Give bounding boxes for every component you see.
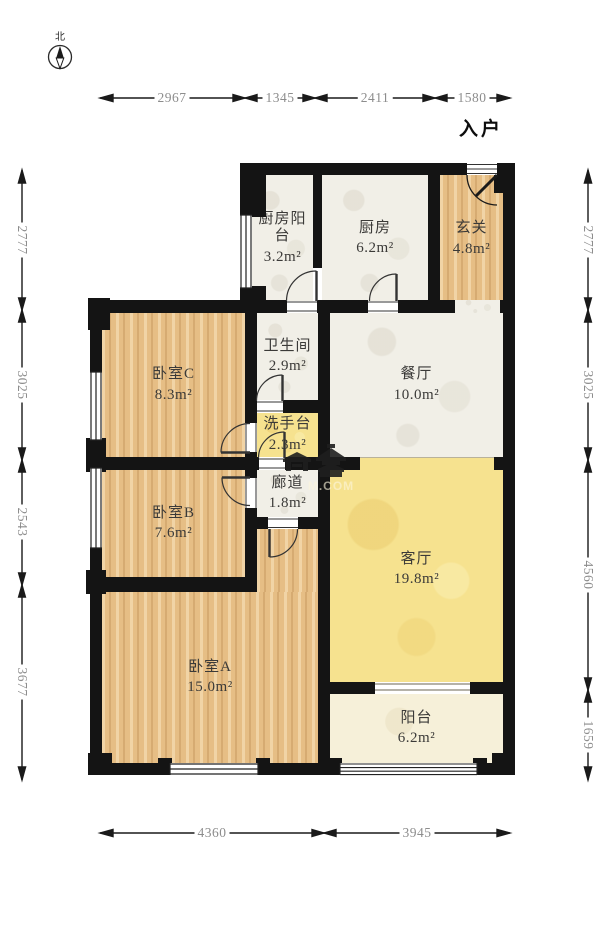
window-balcony bbox=[340, 763, 477, 775]
dim-left-1: 2777 bbox=[14, 223, 30, 258]
dimension-line-right bbox=[584, 170, 591, 780]
opening-entry bbox=[467, 163, 497, 175]
door-bathroom bbox=[257, 375, 283, 401]
window-bedroom-b bbox=[90, 468, 102, 548]
opening-kitchen-balcony bbox=[287, 301, 317, 312]
floorplan-symbols bbox=[0, 0, 615, 943]
opening-bedroom-a bbox=[268, 518, 298, 529]
dim-top-3: 2411 bbox=[358, 90, 393, 106]
dim-left-3: 2543 bbox=[14, 505, 30, 540]
door-wash-area bbox=[259, 432, 285, 458]
window-bedroom-a bbox=[170, 763, 258, 775]
dim-right-4: 1659 bbox=[580, 718, 596, 753]
opening-bathroom bbox=[257, 401, 283, 412]
watermark-icon-pagoda bbox=[316, 444, 346, 477]
window-kitchen-balcony bbox=[240, 215, 252, 288]
dim-left-4: 3677 bbox=[14, 665, 30, 700]
dim-top-2: 1345 bbox=[263, 90, 298, 106]
dimension-line-bottom bbox=[100, 829, 510, 836]
opening-kitchen bbox=[368, 301, 398, 312]
boundary-living-balcony bbox=[375, 684, 470, 690]
dim-top-4: 1580 bbox=[455, 90, 490, 106]
dim-top-1: 2967 bbox=[155, 90, 190, 106]
window-bedroom-c bbox=[90, 372, 102, 440]
dim-right-3: 4560 bbox=[580, 558, 596, 593]
opening-bedroom-c bbox=[245, 423, 257, 452]
compass-icon bbox=[49, 46, 72, 69]
watermark-icon-gate bbox=[283, 452, 311, 471]
door-bedroom-a bbox=[270, 529, 298, 557]
door-kitchen-balcony bbox=[287, 271, 317, 301]
dim-right-2: 3025 bbox=[580, 368, 596, 403]
floorplan-canvas: 厨房阳台 3.2m² 厨房 6.2m² 玄关 4.8m² 卫生间 2.9m² 餐… bbox=[0, 0, 615, 943]
opening-wash-area bbox=[259, 458, 285, 469]
dim-right-1: 2777 bbox=[580, 223, 596, 258]
dim-left-2: 3025 bbox=[14, 368, 30, 403]
door-kitchen bbox=[370, 274, 397, 301]
dim-bottom-2: 3945 bbox=[400, 825, 435, 841]
compass-north-label: 北 bbox=[48, 28, 72, 43]
opening-bedroom-b bbox=[245, 478, 257, 508]
watermark-text: M.COM bbox=[294, 479, 368, 493]
dim-bottom-1: 4360 bbox=[195, 825, 230, 841]
entry-label: 入户 bbox=[452, 114, 510, 141]
door-entry bbox=[467, 175, 497, 205]
